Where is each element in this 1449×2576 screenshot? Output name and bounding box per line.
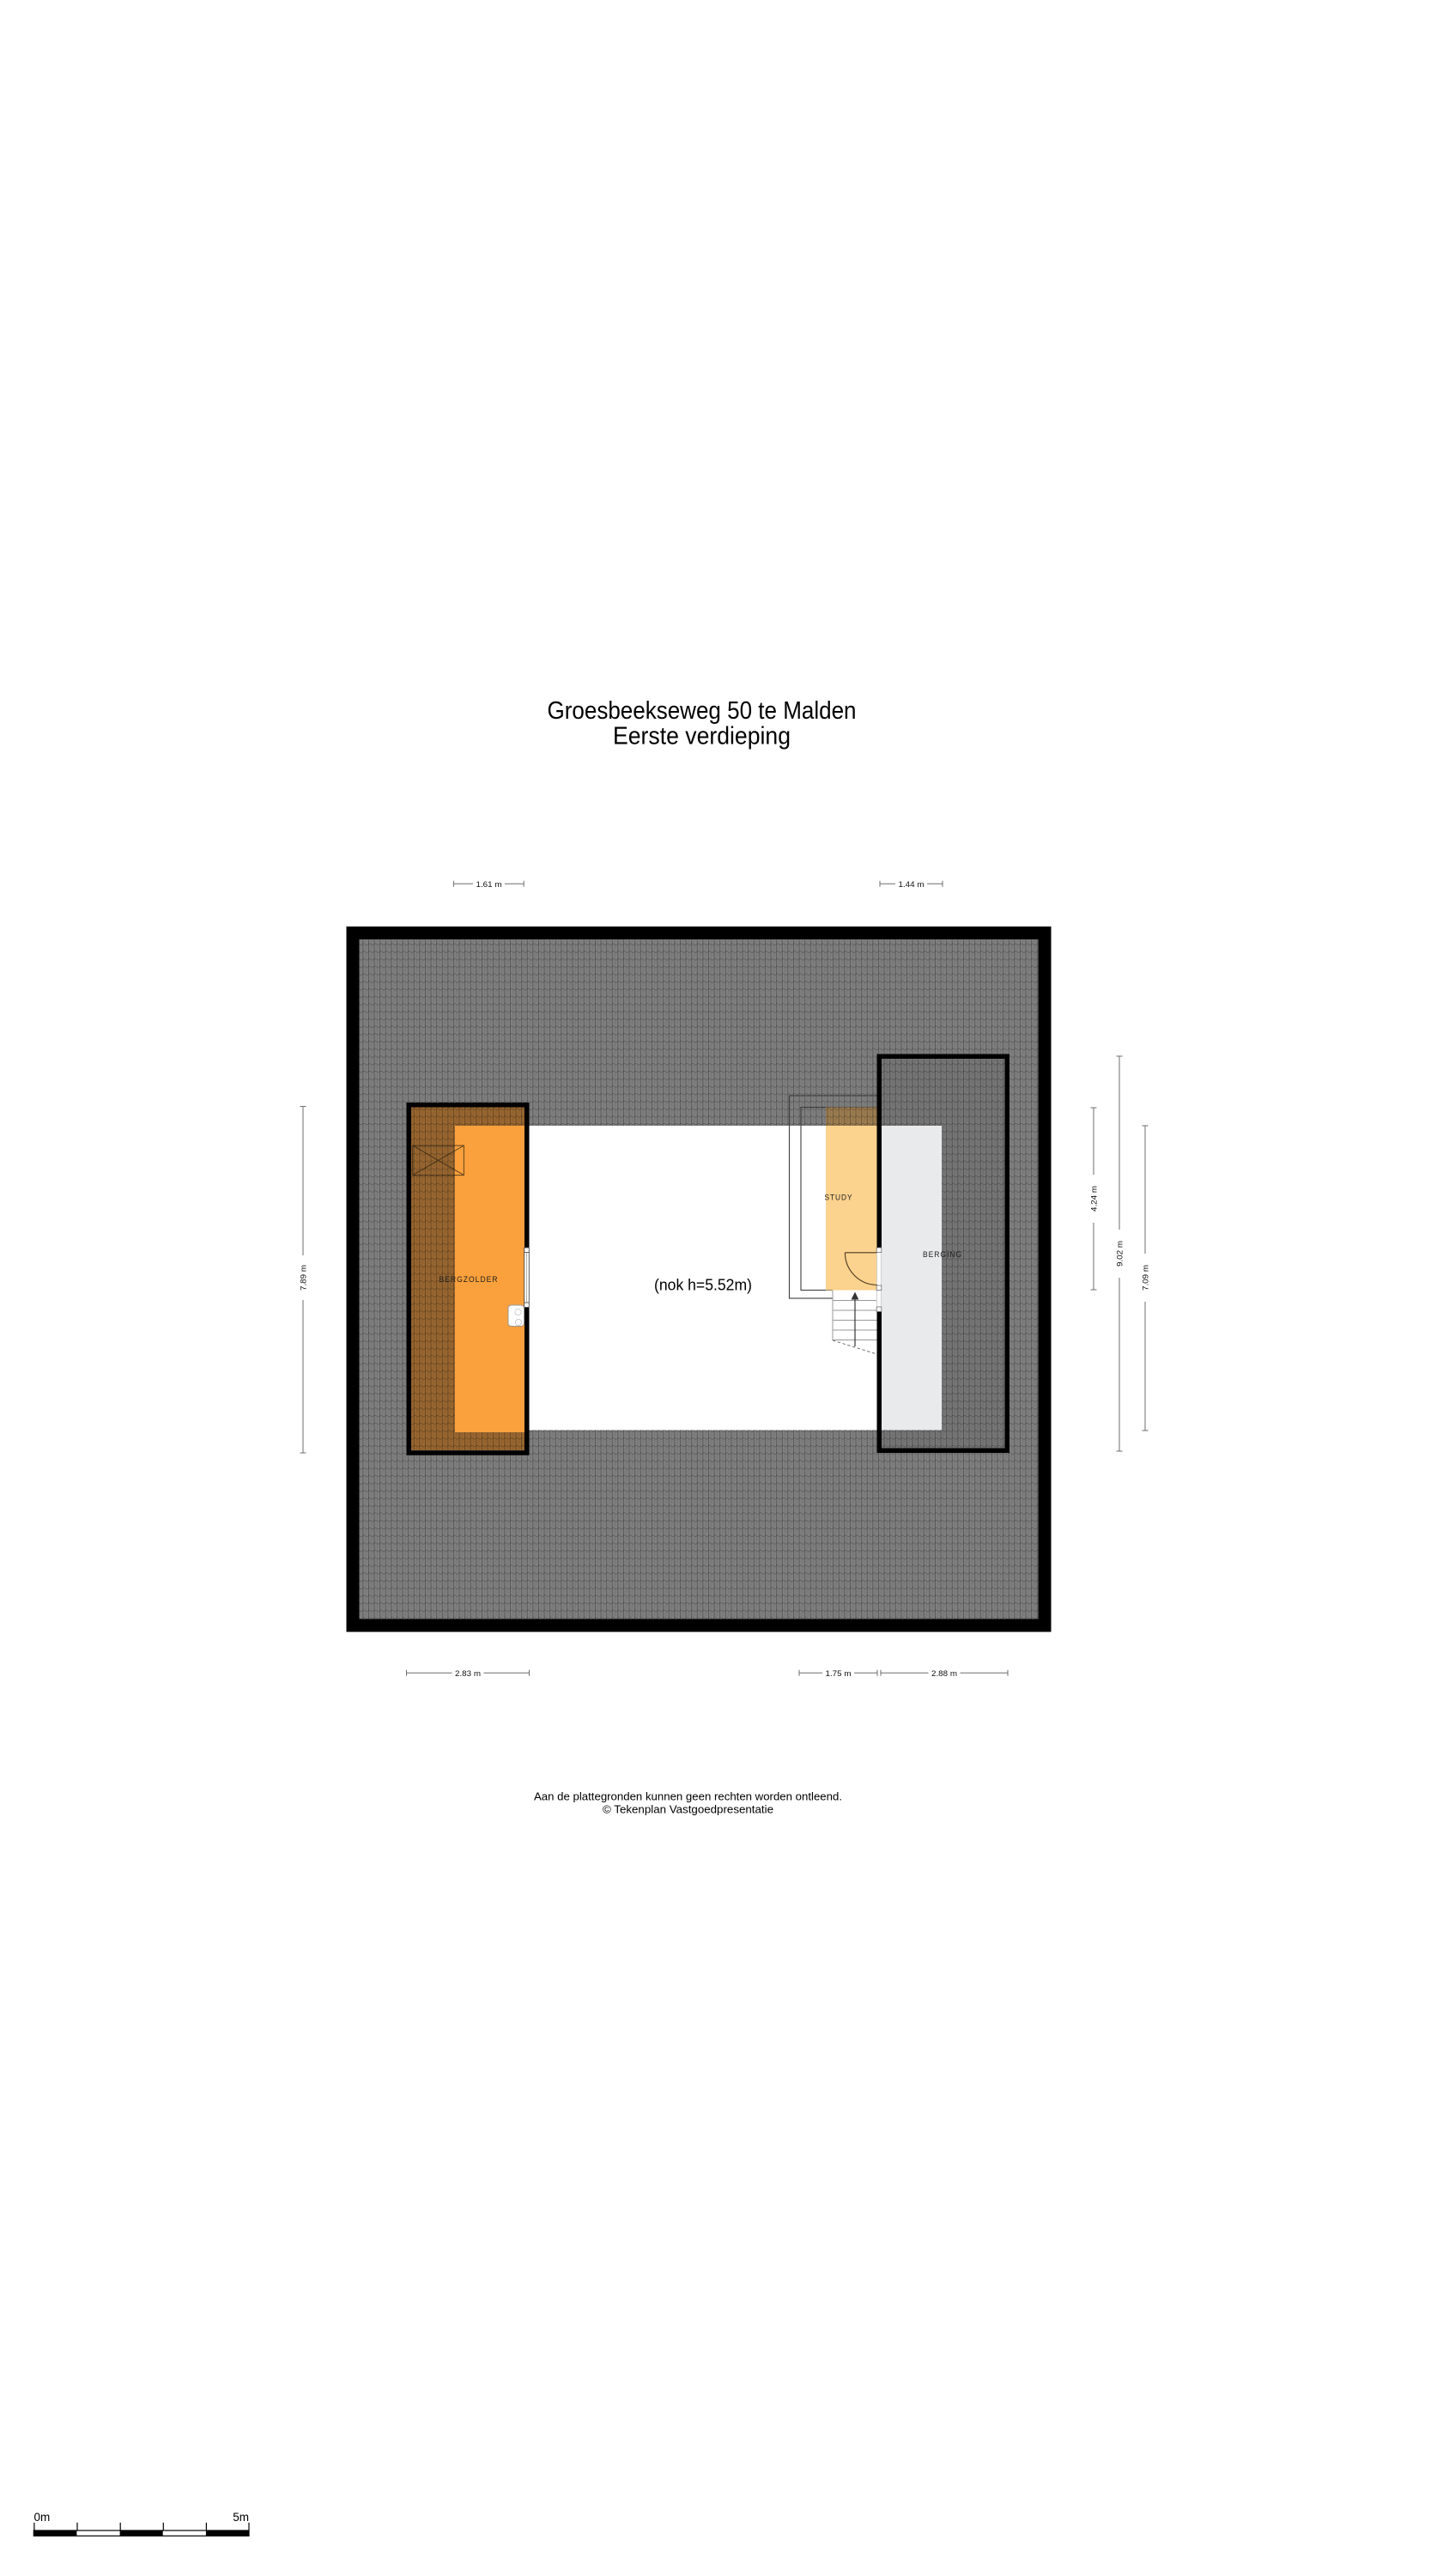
svg-text:Eerste verdieping: Eerste verdieping [613, 723, 791, 750]
svg-text:2.83 m: 2.83 m [455, 1669, 481, 1678]
svg-text:(nok h=5.52m): (nok h=5.52m) [654, 1276, 752, 1294]
svg-text:7.89 m: 7.89 m [300, 1265, 308, 1291]
svg-text:1.44 m: 1.44 m [899, 880, 925, 889]
svg-text:Groesbeekseweg 50 te Malden: Groesbeekseweg 50 te Malden [548, 697, 857, 725]
svg-text:7.09 m: 7.09 m [1142, 1265, 1150, 1291]
svg-text:BERGZOLDER: BERGZOLDER [440, 1275, 499, 1284]
svg-text:© Tekenplan Vastgoedpresentati: © Tekenplan Vastgoedpresentatie [603, 1803, 773, 1816]
svg-text:2.88 m: 2.88 m [931, 1669, 957, 1678]
svg-text:1.61 m: 1.61 m [476, 880, 502, 889]
svg-text:0m: 0m [34, 2511, 51, 2524]
svg-text:BERGING: BERGING [923, 1250, 962, 1259]
svg-text:4.24 m: 4.24 m [1090, 1186, 1099, 1212]
svg-text:STUDY: STUDY [825, 1194, 853, 1202]
svg-text:1.75 m: 1.75 m [826, 1669, 852, 1678]
svg-text:9.02 m: 9.02 m [1116, 1241, 1125, 1267]
svg-text:Aan de plattegronden kunnen ge: Aan de plattegronden kunnen geen rechten… [534, 1790, 842, 1803]
svg-text:5m: 5m [233, 2511, 249, 2524]
